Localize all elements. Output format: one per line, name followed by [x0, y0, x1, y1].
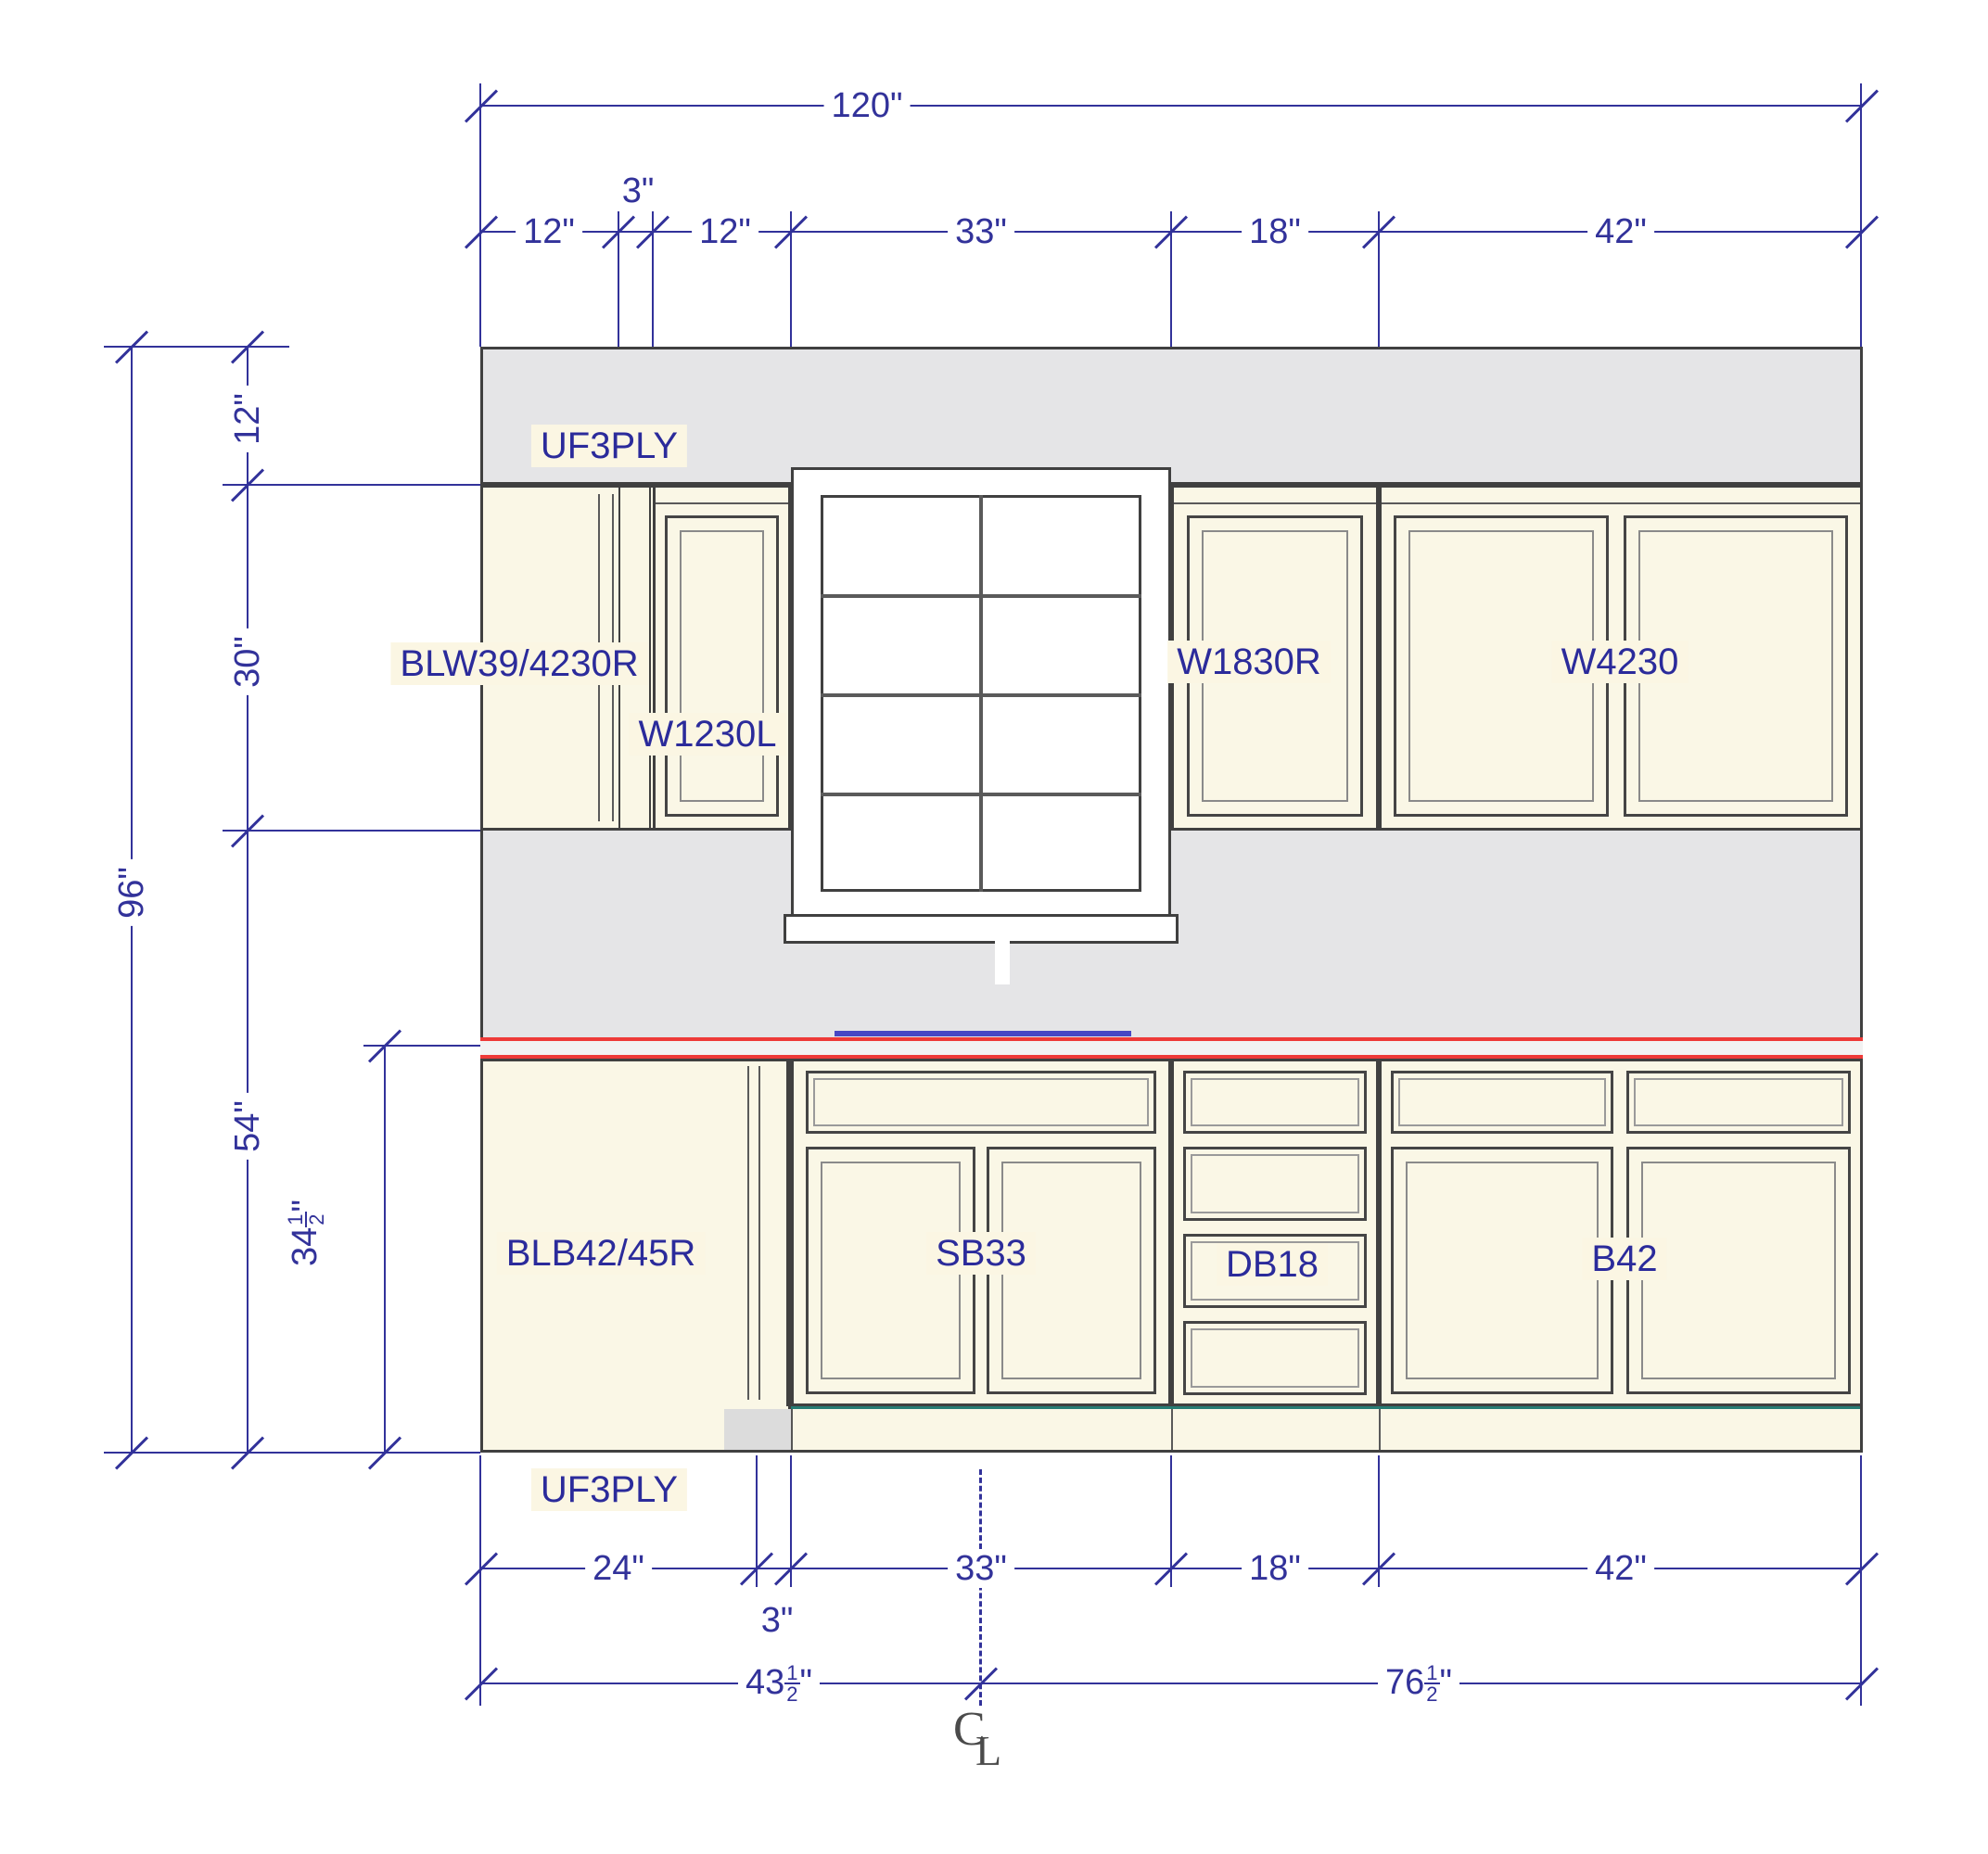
db18-drawer-1 [1183, 1071, 1367, 1134]
elevation-drawing: UF3PLY BLW39/4230R W1230L W1830R W4230 B… [0, 0, 1988, 1854]
faucet [995, 923, 1010, 984]
label-w4230: W4230 [1552, 641, 1689, 683]
base-filler-line [786, 1059, 788, 1406]
dim-line-centerline-row [480, 1683, 1863, 1684]
dim-96: 96" [112, 859, 151, 926]
window-mullion-h1 [821, 594, 1141, 598]
label-sb33: SB33 [926, 1232, 1036, 1275]
window-sill [784, 914, 1179, 944]
base-cabinet-B42 [1379, 1059, 1863, 1406]
label-blw39-4230r: BLW39/4230R [390, 642, 647, 685]
blind-base-edge-line [747, 1066, 749, 1400]
sink-rim-line [835, 1031, 1131, 1036]
soffit [480, 347, 1863, 485]
dim-line-left-segments [247, 347, 248, 1453]
dim-top-3: 3" [615, 171, 662, 210]
dim-bottom-24: 24" [585, 1549, 652, 1588]
upper-filler-line-right [649, 485, 651, 831]
dim-top-33: 33" [948, 212, 1014, 251]
dim-bottom-3: 3" [754, 1601, 801, 1640]
dim-top-12b: 12" [692, 212, 758, 251]
label-w1830r: W1830R [1167, 641, 1331, 683]
db18-drawer-4 [1183, 1321, 1367, 1395]
label-blb42-45r: BLB42/45R [497, 1232, 706, 1275]
dim-bottom-33: 33" [948, 1549, 1014, 1588]
dim-76half: 7612" [1378, 1661, 1459, 1706]
countertop-band [480, 1037, 1863, 1059]
dim-left-54: 54" [228, 1093, 267, 1160]
floor-line [480, 1450, 1863, 1453]
dim-top-12a: 12" [516, 212, 582, 251]
b42-left-drawer [1391, 1071, 1613, 1134]
label-db18: DB18 [1217, 1243, 1328, 1286]
dim-top-42: 42" [1587, 212, 1654, 251]
label-uf3ply-bottom: UF3PLY [531, 1468, 687, 1511]
b42-right-drawer [1626, 1071, 1851, 1134]
w1230l-door [665, 515, 779, 817]
dim-43half: 4312" [738, 1661, 820, 1706]
toe-kick [721, 1406, 1863, 1453]
dim-line-overall-width [480, 105, 1863, 107]
dim-top-18: 18" [1242, 212, 1308, 251]
base-cabinet-DB18 [1171, 1059, 1379, 1406]
toe-kick-joint-2 [1379, 1409, 1381, 1450]
dim-left-12: 12" [228, 386, 267, 452]
wall-cabinet-W1230L [653, 485, 791, 831]
label-w1230l: W1230L [630, 713, 786, 756]
wall-right-edge [1860, 347, 1863, 1453]
dim-bottom-42: 42" [1587, 1549, 1654, 1588]
dim-line-base-height [384, 1046, 386, 1453]
wall-left-edge [480, 347, 483, 1453]
b42-left-door [1391, 1147, 1613, 1394]
window-mullion-h3 [821, 793, 1141, 796]
window-mullion-h2 [821, 693, 1141, 697]
dim-34half: 3412" [284, 1192, 328, 1274]
dim-120: 120" [824, 86, 911, 125]
blind-base-edge-line2 [758, 1066, 760, 1400]
db18-drawer-2 [1183, 1147, 1367, 1221]
dim-bottom-18: 18" [1242, 1549, 1308, 1588]
toe-kick-filler-UF3PLY [724, 1409, 793, 1450]
label-uf3ply-top: UF3PLY [531, 425, 687, 467]
label-b42: B42 [1582, 1238, 1666, 1280]
dim-left-30: 30" [228, 629, 267, 695]
toe-kick-joint-1 [1171, 1409, 1173, 1450]
centerline-symbol-l: L [975, 1726, 1001, 1775]
sb33-false-drawer [806, 1071, 1156, 1134]
